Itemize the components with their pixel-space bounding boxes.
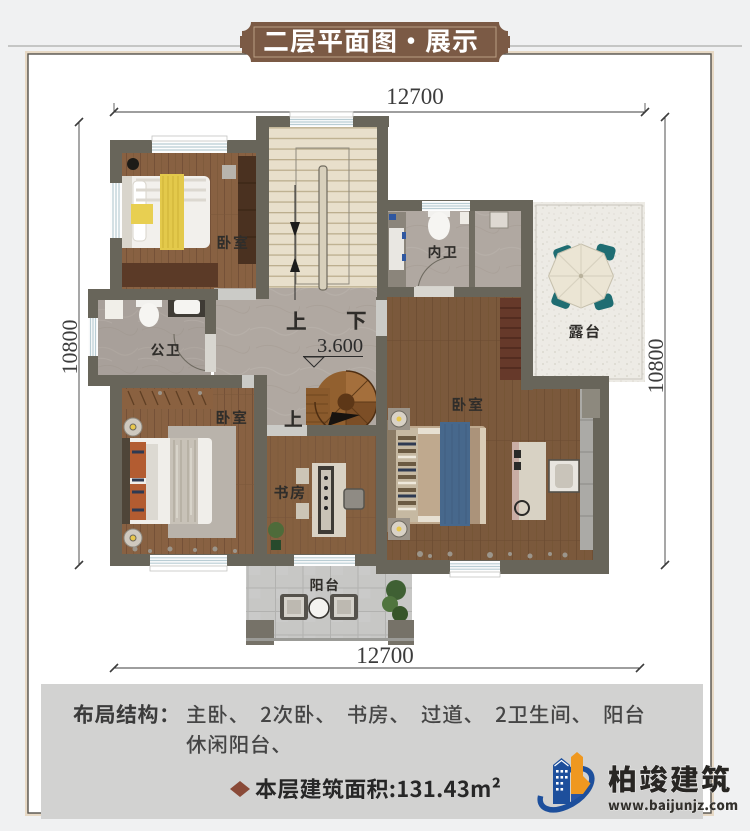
svg-text:10800: 10800 <box>643 339 668 394</box>
svg-text:3.600: 3.600 <box>317 335 363 357</box>
svg-text:10800: 10800 <box>57 320 82 375</box>
svg-text:12700: 12700 <box>386 84 444 109</box>
svg-text:12700: 12700 <box>356 643 414 668</box>
